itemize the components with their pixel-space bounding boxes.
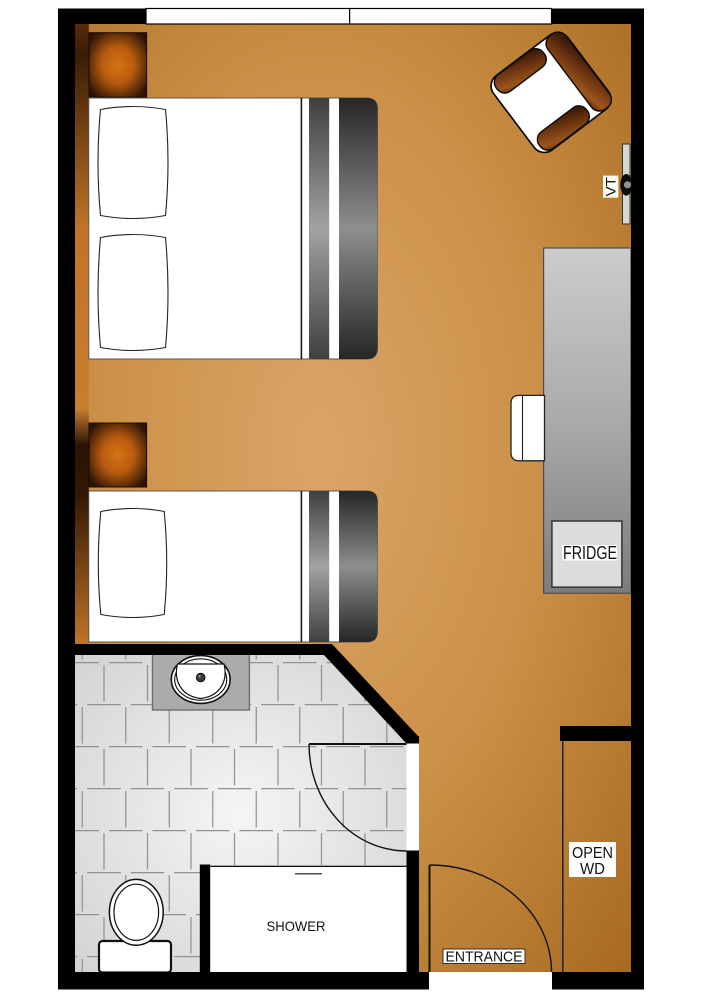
- svg-text:WD: WD: [580, 861, 605, 878]
- svg-text:OPEN: OPEN: [572, 845, 613, 862]
- svg-text:VT: VT: [604, 177, 619, 197]
- svg-text:FRIDGE: FRIDGE: [563, 543, 617, 563]
- svg-text:SHOWER: SHOWER: [267, 918, 326, 934]
- svg-text:ENTRANCE: ENTRANCE: [446, 950, 523, 966]
